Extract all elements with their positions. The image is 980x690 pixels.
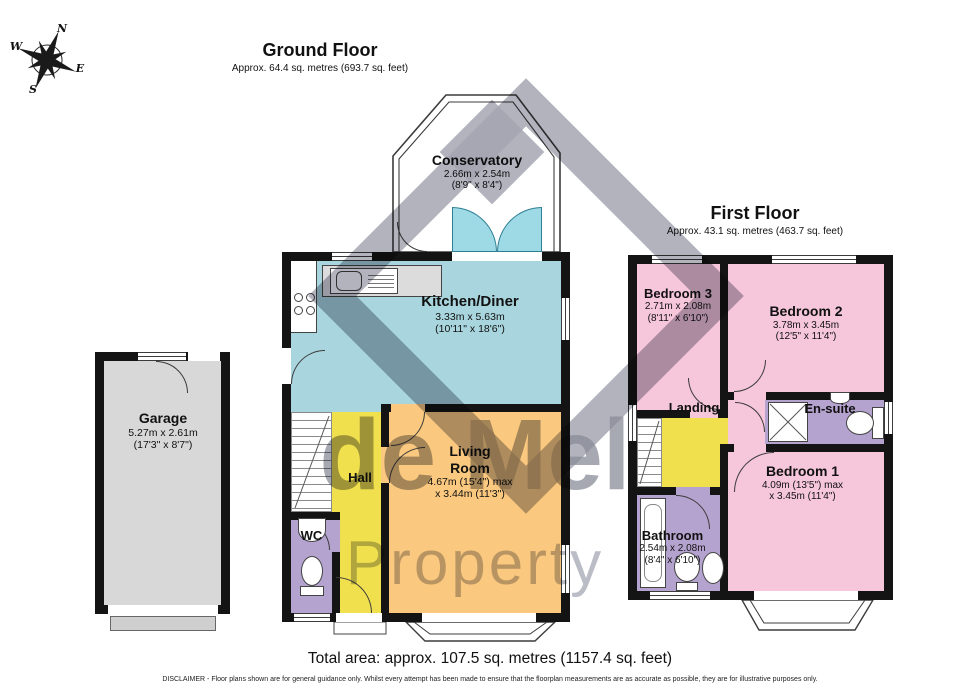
compass-n-label: N (56, 22, 68, 35)
ensuite-window (884, 402, 893, 434)
stairs-first (637, 418, 662, 487)
wall-hall-living (381, 404, 389, 613)
room-label-hall: Hall (330, 470, 390, 485)
back-door-opening (282, 348, 291, 384)
room-label-conservatory: Conservatory 2.66m x 2.54m (8'9" x 8'4") (407, 152, 547, 192)
ground-floor-subtitle: Approx. 64.4 sq. metres (693.7 sq. feet) (200, 63, 440, 74)
garage-door-opening (188, 352, 220, 361)
room-label-living-room: Living Room 4.67m (15'4") max x 3.44m (1… (420, 443, 520, 501)
room-label-landing: Landing (652, 400, 736, 415)
sink-bowl-icon (336, 271, 362, 291)
first-floor-subtitle: Approx. 43.1 sq. metres (463.7 sq. feet) (635, 226, 875, 237)
wc-door-opening (332, 520, 340, 552)
garage-up-and-over-door (110, 616, 216, 631)
bed3-window (652, 255, 702, 264)
bathroom-toilet-tank-icon (676, 582, 698, 591)
garage-window (138, 352, 186, 361)
kitchen-side-window (561, 298, 570, 340)
room-label-wc: WC (291, 528, 332, 543)
bathroom-window (650, 591, 710, 600)
room-label-bedroom-1: Bedroom 1 4.09m (13'5") max x 3.45m (11'… (730, 463, 875, 503)
wc-toilet-bowl-icon (301, 556, 323, 586)
living-door-opening (391, 404, 425, 412)
front-door-opening (336, 613, 382, 622)
room-label-bedroom-3: Bedroom 3 2.71m x 2.08m (8'11" x 6'10") (618, 286, 738, 325)
total-area-text: Total area: approx. 107.5 sq. metres (11… (0, 650, 980, 668)
french-door-opening (452, 252, 542, 261)
hob-ring-icon (306, 293, 315, 302)
bay-window-first (742, 600, 873, 630)
living-side-window (561, 545, 570, 593)
room-label-bathroom: Bathroom 2.54m x 2.08m (8'4" x 6'10") (615, 528, 730, 567)
bay-window-ground (406, 622, 555, 641)
wc-toilet-tank-icon (300, 586, 324, 596)
kitchen-window (332, 252, 372, 261)
first-floor-title-block: First Floor Approx. 43.1 sq. metres (463… (635, 203, 875, 237)
ground-floor-title-block: Ground Floor Approx. 64.4 sq. metres (69… (200, 40, 440, 74)
garage-front-opening (108, 605, 218, 614)
ground-floor-title: Ground Floor (200, 40, 440, 61)
hob-ring-icon (294, 306, 303, 315)
first-floor-title: First Floor (635, 203, 875, 224)
room-label-en-suite: En-suite (788, 401, 872, 416)
bathroom-door-opening (676, 487, 710, 495)
room-label-garage: Garage 5.27m x 2.61m (17'3" x 8'7") (100, 410, 226, 451)
wc-window (294, 613, 330, 622)
sink-drainer-icon (368, 272, 394, 290)
stairs-ground (291, 412, 332, 512)
compass-e-label: E (75, 62, 85, 75)
bay-opening-ground (422, 613, 536, 622)
bed2-door-opening (734, 392, 766, 400)
floorplan-canvas: N E S W Ground Floor Approx. 64.4 sq. me… (0, 0, 980, 690)
room-garage (104, 361, 221, 605)
landing-window (628, 405, 637, 441)
bed1-door-opening (734, 444, 766, 452)
disclaimer-text: DISCLAIMER - Floor plans shown are for g… (0, 676, 980, 683)
bay-opening-first (754, 591, 858, 600)
room-label-kitchen-diner: Kitchen/Diner 3.33m x 5.63m (10'11" x 18… (390, 293, 550, 335)
compass-s-label: S (29, 83, 37, 95)
bed2-window (772, 255, 856, 264)
compass-w-label: W (10, 40, 24, 53)
hob-ring-icon (294, 293, 303, 302)
room-label-bedroom-2: Bedroom 2 3.78m x 3.45m (12'5" x 11'4") (736, 303, 876, 343)
hob-ring-icon (306, 306, 315, 315)
compass-rose-icon: N E S W (10, 20, 85, 95)
front-step (334, 622, 386, 634)
